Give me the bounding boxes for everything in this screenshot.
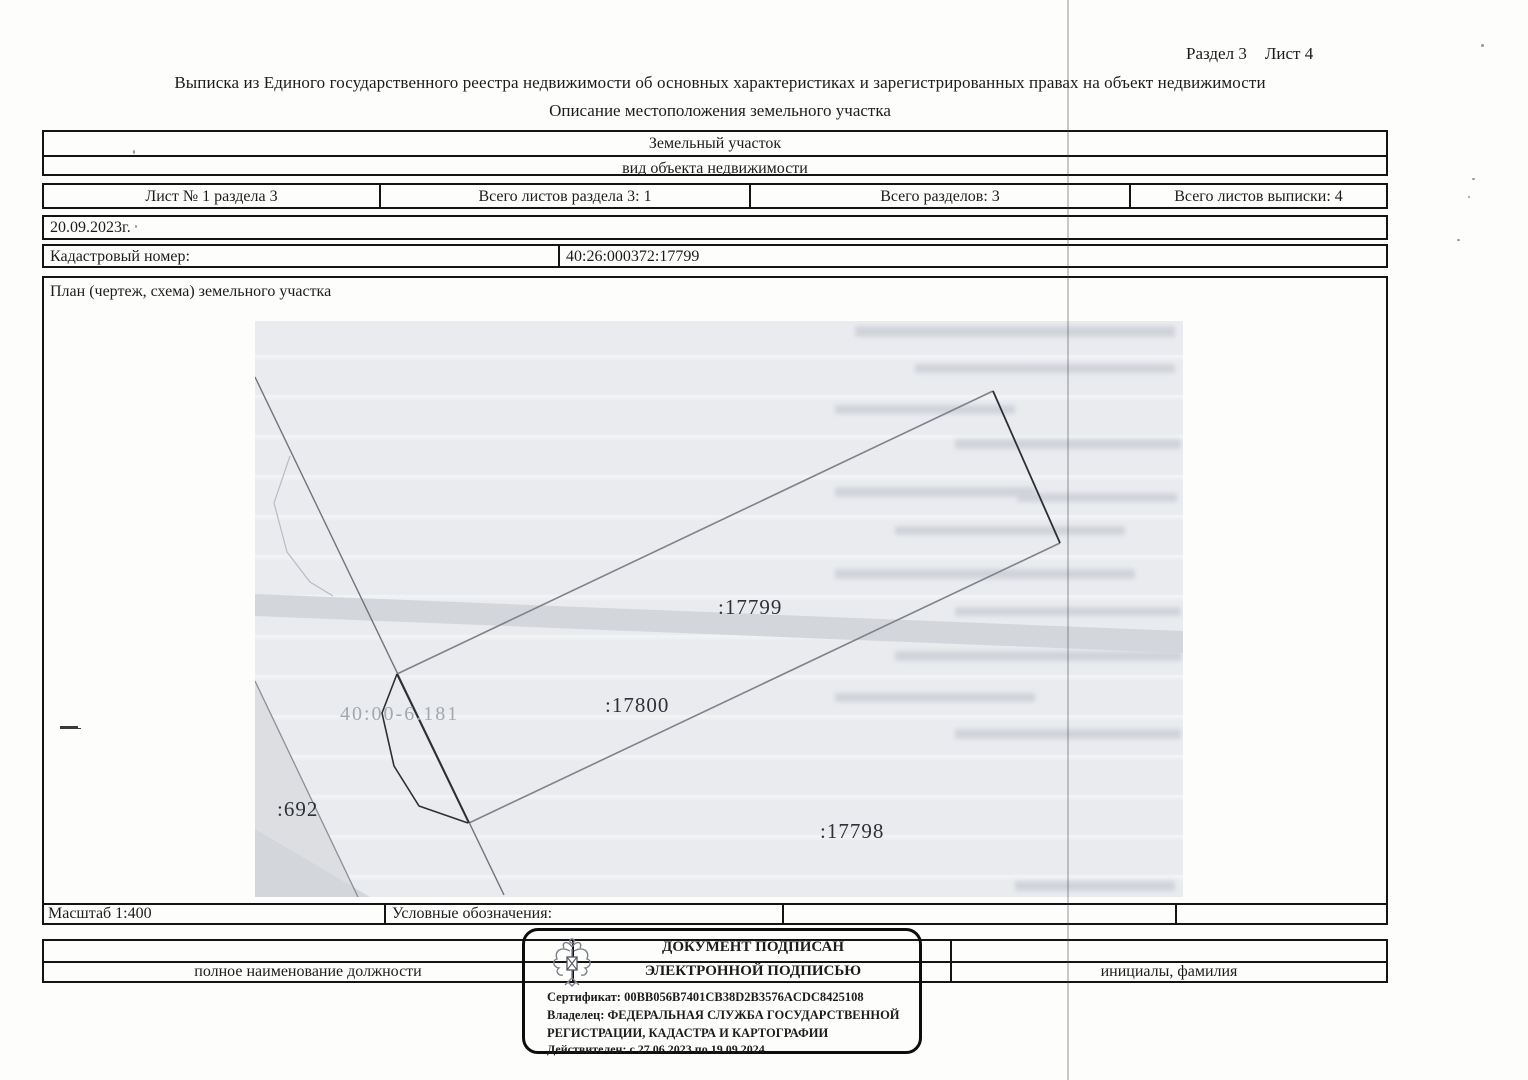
section-number: Раздел 3 (1186, 44, 1247, 63)
plan-title: План (чертеж, схема) земельного участка (50, 283, 331, 301)
scan-speck (135, 225, 137, 228)
document-subtitle: Описание местоположения земельного участ… (0, 101, 1440, 121)
sheet-cell-2: Всего листов раздела 3: 1 (379, 185, 749, 207)
stamp-validity: Действителен: с 27.06.2023 по 19.09.2024 (547, 1042, 765, 1057)
stamp-line-2: ЭЛЕКТРОННОЙ ПОДПИСЬЮ (597, 963, 909, 980)
cadastral-row: Кадастровый номер: 40:26:000372:17799 (42, 244, 1388, 268)
scale-legend-strip: Масштаб 1:400 Условные обозначения: (42, 903, 1388, 925)
scan-speck (1472, 178, 1475, 180)
egrn-extract-page: Раздел 3Лист 4 Выписка из Единого госуда… (0, 0, 1528, 1080)
map-label-parcel-692: :692 (277, 797, 318, 822)
bleed-through-smudges (835, 326, 1182, 891)
parcel-17799-ne-edge (993, 391, 1060, 543)
legend-cell-empty-1 (782, 905, 1175, 923)
digital-signature-stamp: ДОКУМЕНТ ПОДПИСАН ЭЛЕКТРОННОЙ ПОДПИСЬЮ С… (522, 928, 922, 1054)
document-title: Выписка из Единого государственного реес… (0, 73, 1440, 93)
map-scale: Масштаб 1:400 (44, 905, 384, 923)
object-type-value: Земельный участок (44, 132, 1386, 157)
cadastral-label: Кадастровый номер: (44, 246, 558, 266)
sheets-counter-row: Лист № 1 раздела 3 Всего листов раздела … (42, 183, 1388, 209)
legend-label: Условные обозначения: (384, 905, 782, 923)
cadastral-value: 40:26:000372:17799 (558, 246, 1386, 266)
object-type-label: вид объекта недвижимости (44, 157, 1386, 180)
stamp-owner-line-1: Владелец: ФЕДЕРАЛЬНАЯ СЛУЖБА ГОСУДАРСТВЕ… (547, 1008, 900, 1023)
map-label-parcel-17800: :17800 (605, 693, 669, 718)
sheet-cell-4: Всего листов выписки: 4 (1129, 185, 1386, 207)
initials-label: инициалы, фамилия (952, 962, 1386, 982)
position-label: полное наименование должности (44, 962, 572, 982)
map-label-parcel-17798: :17798 (820, 819, 884, 844)
stamp-certificate: Сертификат: 00BB056B7401CB38D2B3576ACDC8… (547, 990, 864, 1005)
legend-cell-empty-2 (1175, 905, 1386, 923)
scan-fold-line (1067, 0, 1069, 1080)
stamp-owner-line-2: РЕГИСТРАЦИИ, КАДАСТРА И КАРТОГРАФИИ (547, 1026, 828, 1041)
map-label-zone: 40:00-6.181 (340, 703, 459, 726)
parcel-17799-se-edge (469, 543, 1060, 823)
scan-speck (1481, 44, 1484, 47)
stamp-line-1: ДОКУМЕНТ ПОДПИСАН (597, 939, 909, 956)
extract-date: 20.09.2023г. (44, 217, 1386, 240)
zone-boundary (382, 674, 468, 823)
section-sheet-indicator: Раздел 3Лист 4 (1186, 44, 1331, 64)
coat-of-arms-eagle-icon (551, 937, 593, 994)
sheet-cell-1: Лист № 1 раздела 3 (44, 185, 379, 207)
sheet-cell-3: Всего разделов: 3 (749, 185, 1129, 207)
sheet-number: Лист 4 (1265, 44, 1313, 63)
scan-speck (133, 150, 135, 154)
cadastral-map: :17800 :17799 :17798 :692 40:00-6.181 (255, 321, 1183, 897)
date-row: 20.09.2023г. (42, 215, 1388, 240)
scan-speck (1468, 196, 1470, 198)
scan-speck (1457, 239, 1460, 241)
object-type-box: Земельный участок вид объекта недвижимос… (42, 130, 1388, 176)
parcel-17799-sw-edge (397, 674, 469, 823)
map-label-parcel-17799: :17799 (718, 595, 782, 620)
stray-pen-mark (60, 726, 78, 729)
